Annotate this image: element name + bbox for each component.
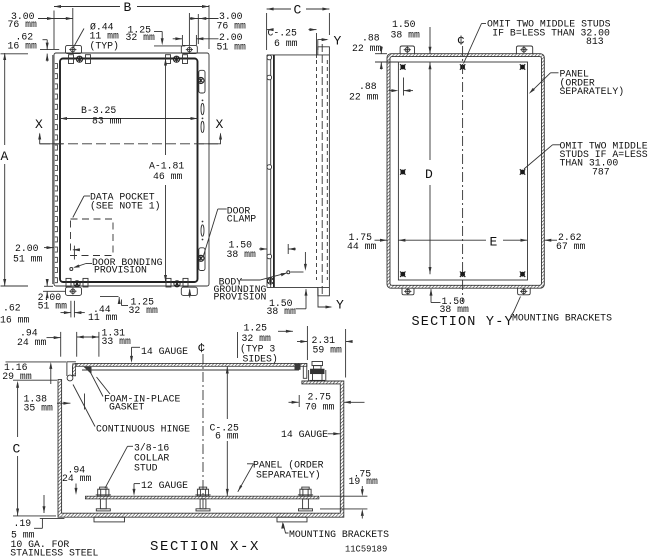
svg-text:GASKET: GASKET — [109, 401, 144, 412]
svg-text:2.00: 2.00 — [15, 243, 39, 254]
svg-text:12 GAUGE: 12 GAUGE — [141, 480, 188, 491]
svg-text:76 mm: 76 mm — [8, 19, 38, 30]
svg-text:Y: Y — [336, 298, 344, 313]
svg-text:(SEE NOTE 1): (SEE NOTE 1) — [90, 201, 161, 212]
svg-text:35 mm: 35 mm — [24, 403, 54, 414]
svg-text:E: E — [490, 235, 498, 250]
svg-text:X: X — [35, 117, 43, 132]
svg-text:6 mm: 6 mm — [274, 38, 298, 49]
svg-text:D: D — [425, 167, 433, 182]
svg-text:B: B — [124, 0, 132, 15]
svg-text:11C59189: 11C59189 — [345, 545, 387, 555]
svg-text:46 mm: 46 mm — [153, 171, 183, 182]
svg-text:PROVISION: PROVISION — [214, 291, 267, 302]
svg-text:32 mm: 32 mm — [129, 305, 159, 316]
svg-text:.88: .88 — [362, 32, 380, 43]
svg-text:11 mm: 11 mm — [88, 312, 118, 323]
svg-text:¢: ¢ — [457, 33, 465, 48]
svg-text:76 mm: 76 mm — [217, 21, 247, 32]
svg-text:SECTION Y-Y: SECTION Y-Y — [412, 315, 514, 330]
svg-text:1.50: 1.50 — [392, 19, 416, 30]
svg-text:83 mm: 83 mm — [92, 116, 122, 127]
svg-text:SEPARATELY): SEPARATELY) — [256, 470, 321, 481]
svg-text:SEPARATELY): SEPARATELY) — [560, 86, 625, 97]
svg-text:(TYP): (TYP) — [90, 41, 119, 52]
svg-text:6 mm: 6 mm — [215, 430, 239, 441]
svg-text:B-3.25: B-3.25 — [81, 105, 116, 116]
svg-text:787: 787 — [592, 166, 610, 177]
svg-text:59 mm: 59 mm — [313, 345, 343, 356]
svg-text:C: C — [13, 442, 21, 457]
svg-text:19 mm: 19 mm — [349, 476, 379, 487]
svg-text:.62: .62 — [3, 302, 21, 313]
svg-text:PROVISION: PROVISION — [94, 265, 147, 276]
svg-text:STUD: STUD — [134, 462, 158, 473]
svg-text:¢: ¢ — [198, 341, 206, 356]
svg-text:38 mm: 38 mm — [391, 30, 421, 41]
svg-text:38 mm: 38 mm — [267, 306, 297, 317]
svg-text:51 mm: 51 mm — [38, 300, 68, 311]
svg-text:X: X — [216, 117, 224, 132]
svg-text:22 mm: 22 mm — [349, 92, 379, 103]
svg-text:24 mm: 24 mm — [62, 473, 92, 484]
svg-text:A-1.81: A-1.81 — [149, 160, 184, 171]
svg-text:MOUNTING BRACKETS: MOUNTING BRACKETS — [512, 313, 612, 324]
svg-text:.19: .19 — [14, 518, 32, 529]
svg-text:22 mm: 22 mm — [352, 43, 382, 54]
svg-text:SIDES): SIDES) — [243, 354, 278, 365]
svg-text:14 GAUGE: 14 GAUGE — [281, 429, 328, 440]
svg-text:16 mm: 16 mm — [8, 41, 38, 52]
svg-text:24 mm: 24 mm — [17, 337, 47, 348]
svg-text:STAINLESS STEEL: STAINLESS STEEL — [10, 547, 98, 556]
svg-text:38 mm: 38 mm — [227, 249, 257, 260]
svg-text:.88: .88 — [359, 81, 377, 92]
svg-text:70 mm: 70 mm — [305, 401, 335, 412]
svg-text:32 mm: 32 mm — [242, 333, 272, 344]
svg-text:51 mm: 51 mm — [13, 253, 43, 264]
svg-text:14 GAUGE: 14 GAUGE — [141, 346, 188, 357]
svg-text:67 mm: 67 mm — [556, 241, 586, 252]
svg-text:Y: Y — [334, 34, 342, 49]
svg-text:C: C — [294, 3, 302, 18]
svg-text:SECTION X-X: SECTION X-X — [150, 539, 260, 555]
svg-text:44 mm: 44 mm — [347, 241, 377, 252]
svg-text:813: 813 — [586, 36, 604, 47]
svg-text:1.25: 1.25 — [244, 323, 268, 334]
svg-text:38 mm: 38 mm — [440, 304, 470, 315]
svg-text:MOUNTING BRACKETS: MOUNTING BRACKETS — [289, 529, 389, 540]
svg-text:29 mm: 29 mm — [2, 371, 32, 382]
svg-text:32 mm: 32 mm — [126, 32, 156, 43]
svg-text:16 mm: 16 mm — [0, 314, 30, 325]
svg-text:51 mm: 51 mm — [217, 42, 247, 53]
svg-text:A: A — [1, 149, 9, 164]
svg-text:CONTINUOUS HINGE: CONTINUOUS HINGE — [96, 423, 190, 434]
svg-text:33 mm: 33 mm — [102, 336, 132, 347]
svg-text:CLAMP: CLAMP — [227, 213, 257, 224]
